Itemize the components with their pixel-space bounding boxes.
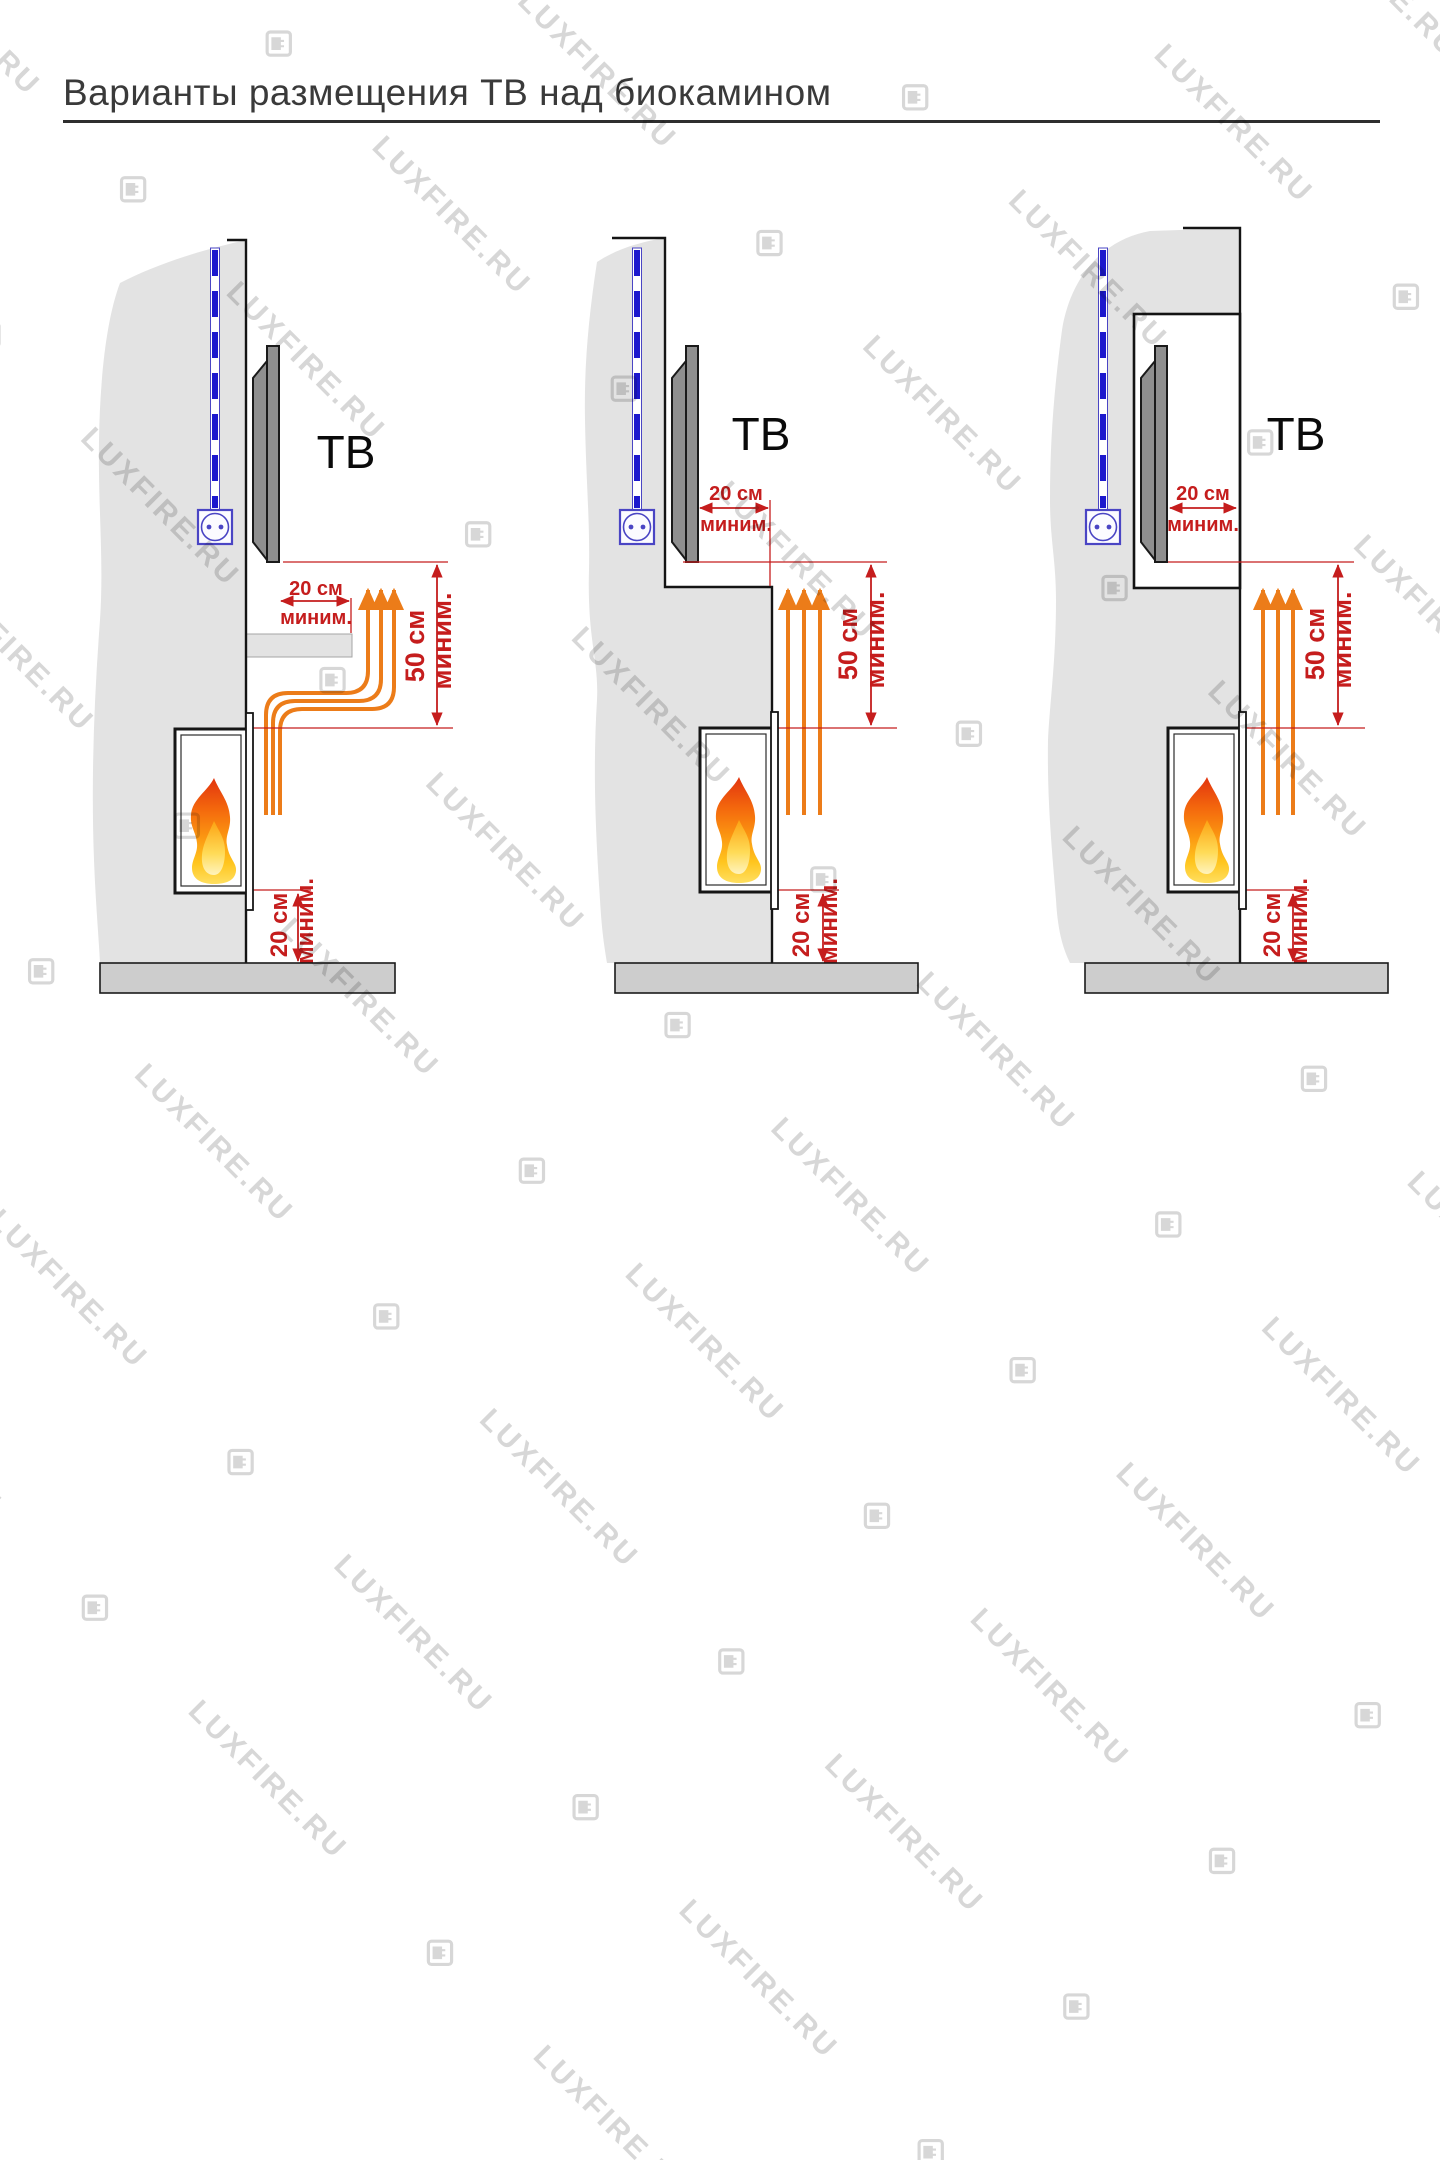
power-outlet-icon [620, 510, 654, 544]
svg-text:миним.: миним. [816, 878, 843, 964]
svg-text:миним.: миним. [280, 607, 352, 629]
luxfire-logo-icon [1050, 1980, 1104, 2034]
watermark-text: LUXFIRE.RU [762, 1110, 937, 1285]
luxfire-logo-icon [850, 1489, 904, 1543]
luxfire-logo-icon [413, 1926, 467, 1980]
placement-diagrams: ТВ 20 см миним. 50 см миним. 20 с [0, 0, 1440, 1080]
bio-fireplace [1168, 712, 1246, 909]
watermark-text: LUXFIRE.RU [1107, 1455, 1282, 1630]
luxfire-logo-icon [214, 1435, 268, 1489]
title-underline [63, 120, 1380, 123]
luxfire-logo-icon [1141, 1198, 1195, 1252]
tv-label: ТВ [1267, 408, 1326, 460]
heat-flow-arrows [1263, 590, 1293, 815]
diagram-tv-in-niche: ТВ 20 см миним. 50 см миним. 20 см миним… [1048, 228, 1388, 993]
svg-text:50 см: 50 см [1300, 608, 1330, 681]
watermark-text: LUXFIRE.RU [0, 1202, 156, 1377]
svg-text:20 см: 20 см [289, 578, 343, 600]
tv-label: ТВ [732, 408, 791, 460]
luxfire-logo-icon [704, 1635, 758, 1689]
power-outlet-icon [198, 510, 232, 544]
svg-text:20 см: 20 см [1259, 893, 1286, 957]
bio-fireplace [700, 712, 778, 909]
luxfire-logo-icon [904, 2125, 958, 2160]
watermark-text: LUXFIRE.RU [180, 1693, 355, 1868]
watermark-text: LUXFIRE.RU [0, 1348, 10, 1523]
watermark-text: LUXFIRE.RU [816, 1746, 991, 1921]
tv-side-view [253, 346, 279, 562]
diagram-shelf-above-fireplace: ТВ 20 см миним. 50 см миним. 20 с [93, 240, 457, 993]
watermark-text: LUXFIRE.RU [525, 2038, 700, 2160]
svg-text:миним.: миним. [1167, 514, 1239, 536]
tv-side-view [1141, 346, 1167, 562]
infographic-canvas: Варианты размещения ТВ над биокамином [0, 0, 1440, 1080]
svg-text:20 см: 20 см [788, 893, 815, 957]
svg-text:50 см: 50 см [833, 608, 863, 681]
watermark-text: LUXFIRE.RU [126, 1056, 301, 1231]
watermark-text: LUXFIRE.RU [962, 1601, 1137, 1776]
luxfire-logo-icon [1195, 1834, 1249, 1888]
svg-text:20 см: 20 см [709, 483, 763, 505]
watermark-text: LUXFIRE.RU [325, 1547, 500, 1722]
svg-text:20 см: 20 см [266, 893, 293, 957]
watermark-text: LUXFIRE.RU [671, 1892, 846, 2067]
svg-text:миним.: миним. [1327, 592, 1357, 689]
svg-text:миним.: миним. [427, 593, 457, 690]
luxfire-logo-icon [359, 1290, 413, 1344]
bio-fireplace [175, 713, 253, 910]
page-title: Варианты размещения ТВ над биокамином [63, 72, 832, 114]
protective-shelf [246, 634, 352, 657]
luxfire-logo-icon [559, 1780, 613, 1834]
watermark-text: LUXFIRE.RU [471, 1401, 646, 1576]
luxfire-logo-icon [996, 1343, 1050, 1397]
floor-slab [100, 963, 395, 993]
watermark-text: LUXFIRE.RU [1399, 1164, 1440, 1339]
svg-text:миним.: миним. [700, 514, 772, 536]
svg-text:миним.: миним. [860, 592, 890, 689]
floor-slab [615, 963, 918, 993]
floor-slab [1085, 963, 1388, 993]
watermark-text: LUXFIRE.RU [617, 1256, 792, 1431]
diagram-protruding-firebox: ТВ 20 см миним. 50 см миним. 20 см мини [585, 238, 918, 993]
luxfire-logo-icon [1341, 1688, 1395, 1742]
dimension-annotations: 20 см миним. 50 см миним. 20 см миним. [245, 562, 457, 964]
watermark-text: LUXFIRE.RU [1253, 1309, 1428, 1484]
svg-text:50 см: 50 см [400, 610, 430, 683]
luxfire-logo-icon [505, 1144, 559, 1198]
luxfire-logo-icon [68, 1581, 122, 1635]
tv-side-view [672, 346, 698, 562]
svg-text:20 см: 20 см [1176, 483, 1230, 505]
tv-label: ТВ [317, 426, 376, 478]
svg-text:миним.: миним. [292, 878, 319, 964]
heat-flow-arrows [788, 590, 820, 815]
power-outlet-icon [1086, 510, 1120, 544]
svg-text:миним.: миним. [1286, 878, 1313, 964]
